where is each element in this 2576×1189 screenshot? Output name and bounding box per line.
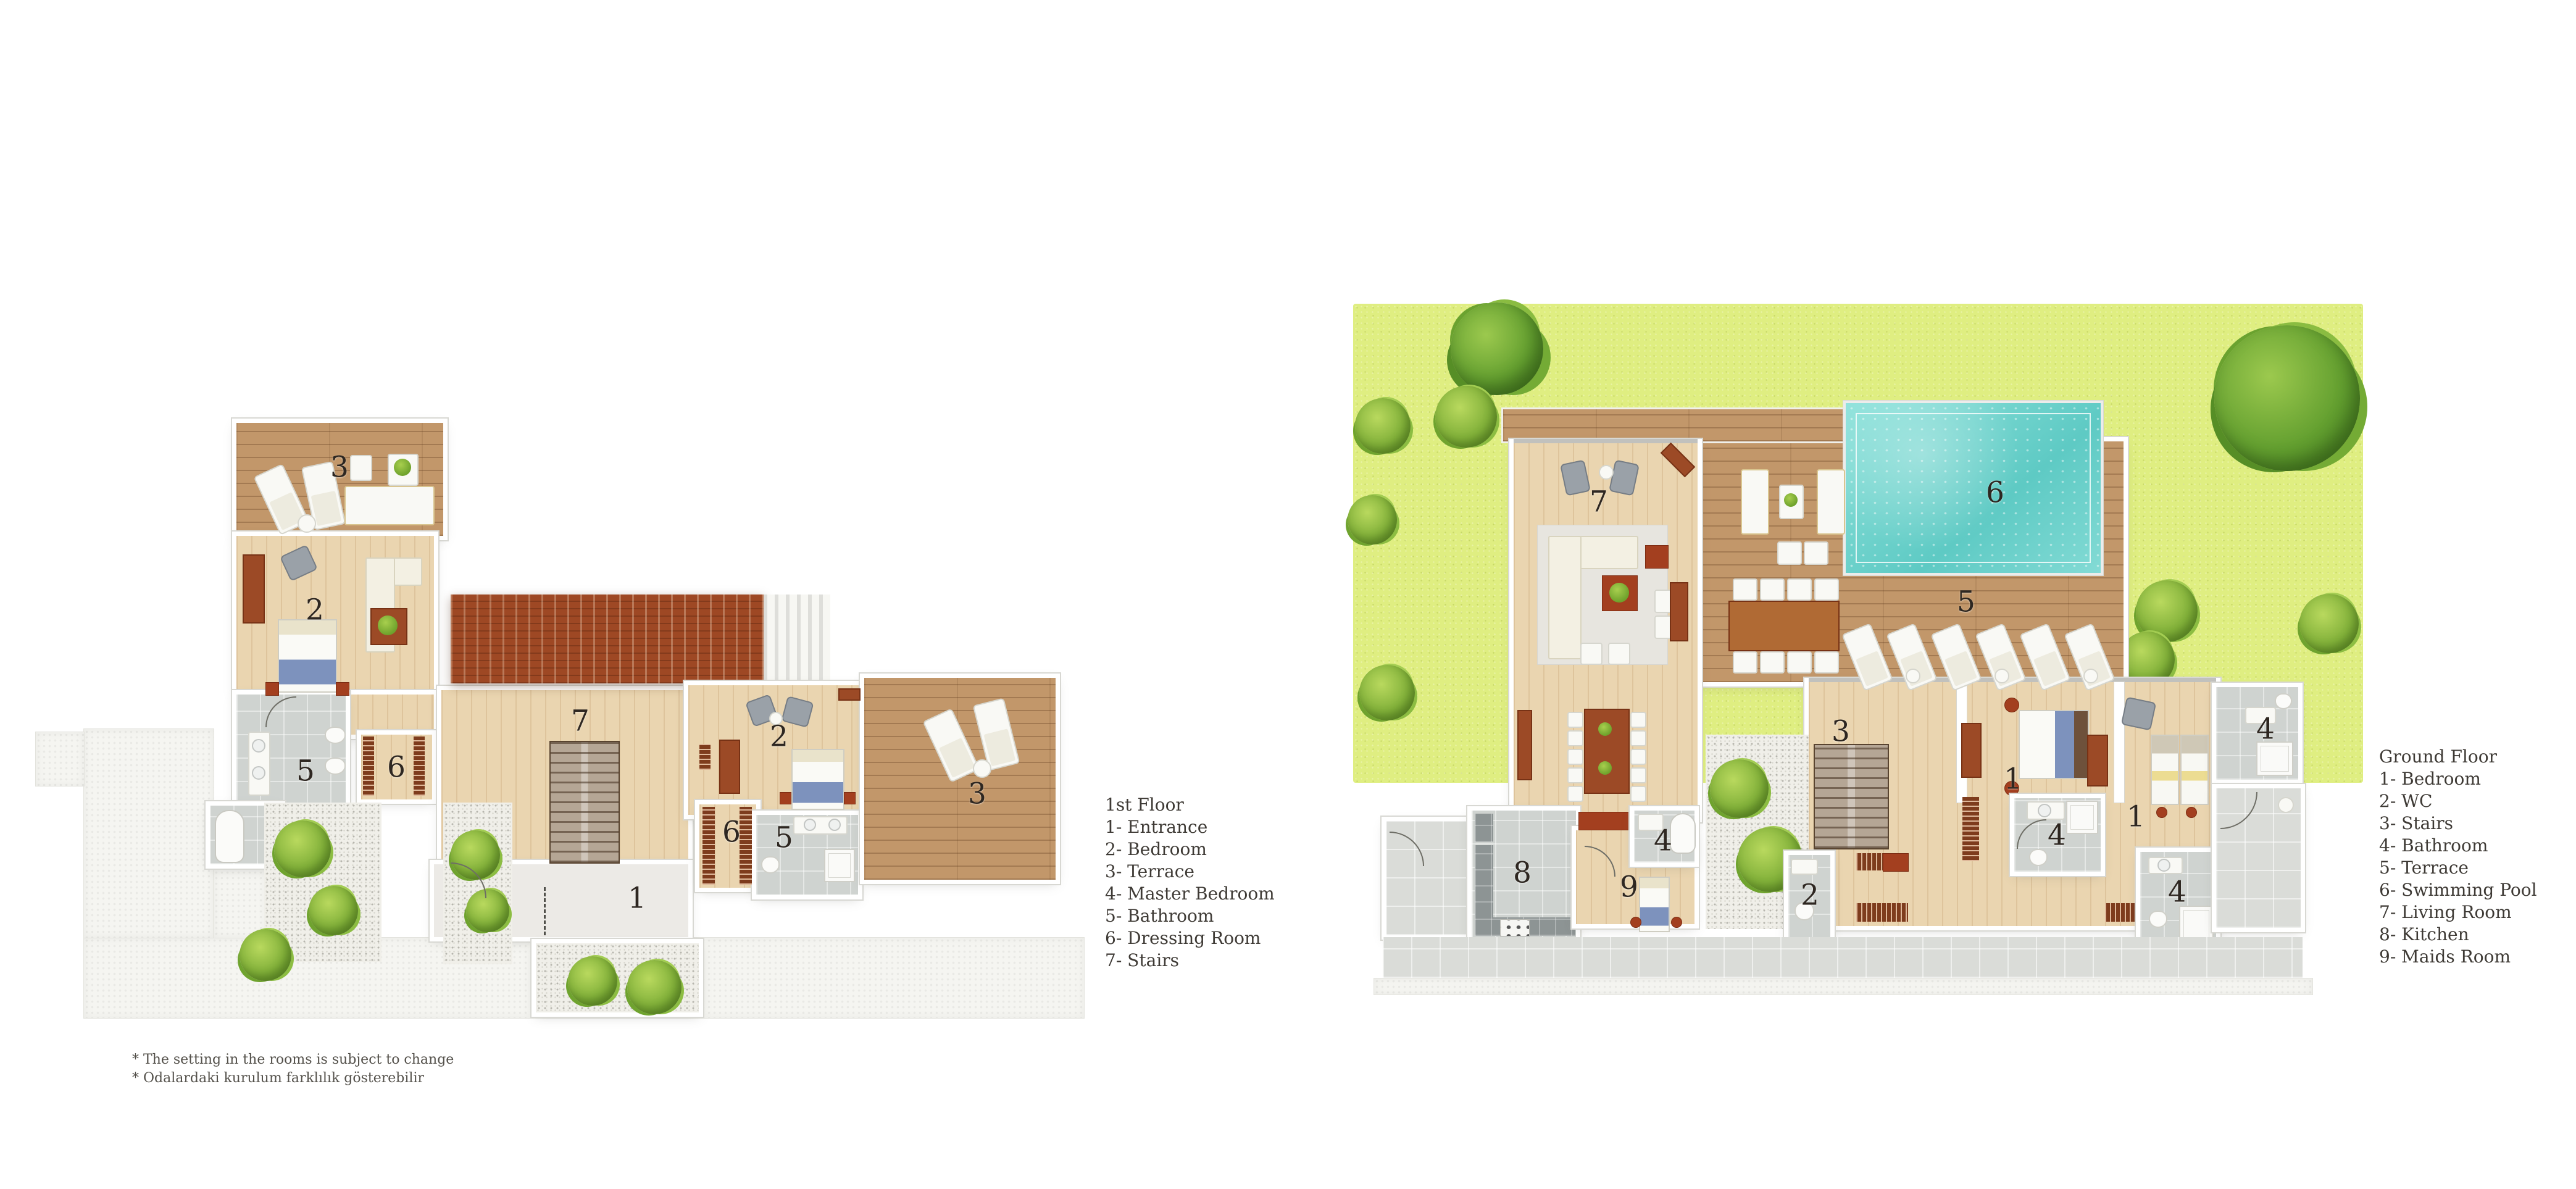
room-number: 4 — [2256, 715, 2275, 744]
text-line: 7- Living Room — [2379, 901, 2537, 924]
first-floor-legend: 1st Floor 1- Entrance2- Bedroom3- Terrac… — [1105, 794, 1275, 972]
text-line: * The setting in the rooms is subject to… — [132, 1051, 454, 1069]
room-number: 4 — [2048, 821, 2066, 850]
text-line: 8- Kitchen — [2379, 924, 2537, 946]
room-number: 1 — [2004, 765, 2022, 794]
room-number-layer: 7653114444289 — [1349, 299, 2374, 1003]
text-line: 4- Bathroom — [2379, 835, 2537, 857]
first-floor-plan: 3272566531 — [80, 423, 1117, 1040]
floor-plans-canvas: 3272566531 — [0, 0, 2576, 1189]
text-line: 3- Terrace — [1105, 861, 1275, 883]
room-number: 6 — [722, 818, 741, 847]
legend-title: Ground Floor — [2379, 746, 2537, 768]
legend-items: 1- Entrance2- Bedroom3- Terrace4- Master… — [1105, 816, 1275, 972]
room-number: 2 — [1801, 881, 1819, 910]
room-number: 5 — [775, 824, 793, 853]
text-line: 2- Bedroom — [1105, 838, 1275, 861]
room-number: 2 — [306, 596, 324, 625]
room-number: 7 — [1590, 488, 1608, 517]
side-step-pad — [35, 732, 85, 786]
room-number: 4 — [2168, 878, 2186, 907]
legend-items: 1- Bedroom2- WC3- Stairs4- Bathroom5- Te… — [2379, 768, 2537, 968]
room-number: 9 — [1620, 873, 1638, 902]
room-number: 7 — [571, 707, 590, 736]
room-number: 6 — [387, 753, 406, 782]
text-line: 3- Stairs — [2379, 812, 2537, 835]
room-number: 6 — [1986, 478, 2004, 507]
footnotes: * The setting in the rooms is subject to… — [132, 1051, 454, 1088]
room-number-layer: 3272566531 — [80, 423, 1117, 1040]
text-line: 1- Bedroom — [2379, 768, 2537, 790]
text-line: 2- WC — [2379, 790, 2537, 812]
text-line: 4- Master Bedroom — [1105, 883, 1275, 905]
ground-floor-plan: 7653114444289 — [1349, 299, 2374, 1003]
room-number: 5 — [296, 757, 315, 786]
room-number: 3 — [330, 453, 349, 482]
text-line: 5- Bathroom — [1105, 905, 1275, 927]
room-number: 3 — [968, 780, 986, 809]
room-number: 4 — [1654, 827, 1672, 856]
room-number: 1 — [628, 884, 646, 913]
text-line: * Odalardaki kurulum farklılık gösterebi… — [132, 1069, 454, 1088]
text-line: 6- Dressing Room — [1105, 927, 1275, 949]
text-line: 6- Swimming Pool — [2379, 879, 2537, 901]
room-number: 2 — [770, 722, 788, 751]
ground-floor-legend: Ground Floor 1- Bedroom2- WC3- Stairs4- … — [2379, 746, 2537, 968]
room-number: 3 — [1832, 717, 1850, 746]
text-line: 5- Terrace — [2379, 857, 2537, 879]
text-line: 9- Maids Room — [2379, 946, 2537, 968]
legend-title: 1st Floor — [1105, 794, 1275, 816]
text-line: 7- Stairs — [1105, 949, 1275, 972]
room-number: 5 — [1957, 588, 1975, 617]
room-number: 8 — [1513, 859, 1532, 888]
text-line: 1- Entrance — [1105, 816, 1275, 838]
room-number: 1 — [2127, 803, 2145, 832]
